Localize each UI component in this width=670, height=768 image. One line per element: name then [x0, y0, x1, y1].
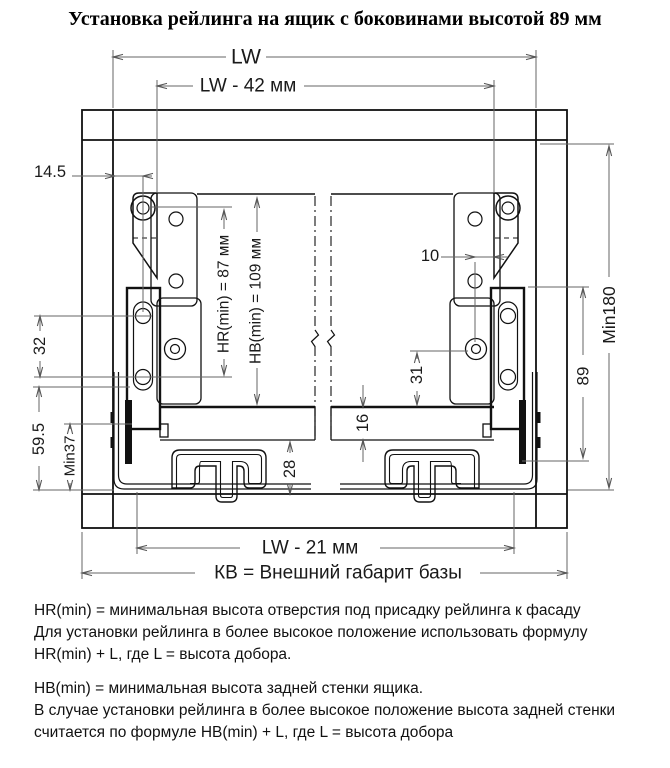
- dim-label-d32: 32: [31, 337, 49, 355]
- dim-label-d16: 16: [354, 414, 372, 432]
- drawer-bottom-panel: [160, 407, 494, 440]
- dim-label-d145: 14.5: [34, 163, 66, 181]
- note-line: Для установки рейлинга в более высокое п…: [34, 622, 644, 644]
- dim-label-min180: Min180: [599, 286, 619, 344]
- note-line: HR(min) + L, где L = высота добора.: [34, 644, 644, 666]
- dim-label-hr: HR(min) = 87 мм: [216, 235, 233, 353]
- note-hr-formula: HR(min) = минимальная высота отверстия п…: [34, 600, 644, 666]
- note-line: HB(min) = минимальная высота задней стен…: [34, 678, 644, 700]
- dim-label-d10: 10: [421, 247, 439, 265]
- dim-label-lw: LW: [231, 46, 261, 69]
- center-break-lines: [312, 196, 335, 438]
- note-line: В случае установки рейлинга в более высо…: [34, 700, 644, 722]
- note-hb-formula: HB(min) = минимальная высота задней стен…: [34, 678, 644, 744]
- dim-label-lw21: LW - 21 мм: [262, 538, 359, 559]
- dim-label-min37: Min37: [62, 436, 79, 477]
- dim-label-d595: 59.5: [30, 423, 48, 455]
- note-line: HR(min) = минимальная высота отверстия п…: [34, 600, 644, 622]
- dim-label-hb: HB(min) = 109 мм: [248, 238, 265, 364]
- dimension-annotations: LWLW - 42 мм14.510HR(min) = 87 ммHB(min)…: [30, 46, 619, 584]
- dim-label-d31: 31: [408, 366, 426, 384]
- dim-label-d28: 28: [281, 460, 299, 478]
- drawer-side-assembly-right: [340, 288, 541, 502]
- dim-label-kv: КВ = Внешний габарит базы: [214, 563, 462, 584]
- note-line: считается по формуле HB(min) + L, где L …: [34, 722, 644, 744]
- dim-label-d89: 89: [574, 367, 593, 386]
- dim-label-lw42: LW - 42 мм: [200, 76, 297, 97]
- page: Установка рейлинга на ящик с боковинами …: [0, 0, 670, 768]
